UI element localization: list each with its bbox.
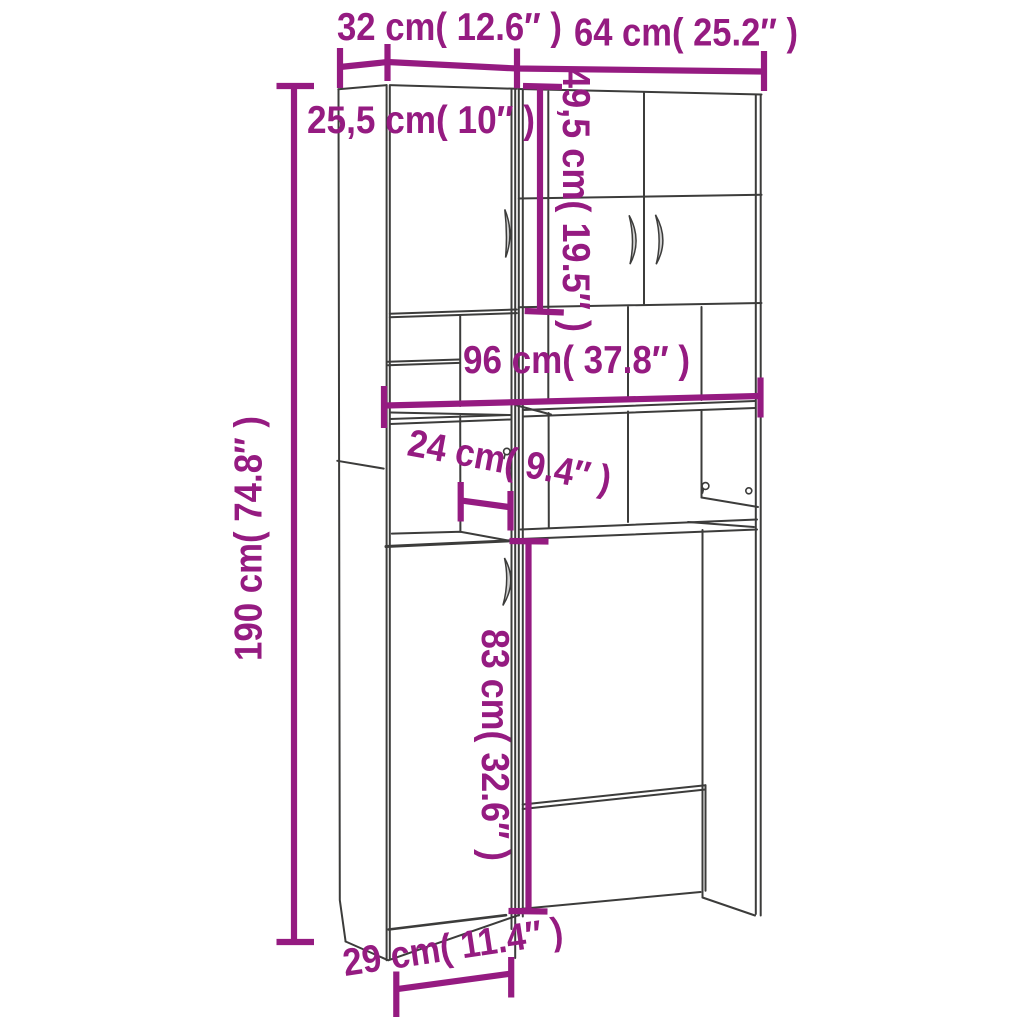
svg-text:24 cm( 9.4″ ): 24 cm( 9.4″ ) [404, 422, 614, 502]
svg-text:83 cm( 32.6″ ): 83 cm( 32.6″ ) [473, 629, 516, 861]
svg-text:96 cm( 37.8″ ): 96 cm( 37.8″ ) [463, 339, 690, 382]
svg-text:64 cm( 25.2″ ): 64 cm( 25.2″ ) [574, 12, 798, 55]
svg-text:32 cm( 12.6″ ): 32 cm( 12.6″ ) [337, 6, 562, 49]
svg-text:190 cm( 74.8″ ): 190 cm( 74.8″ ) [228, 416, 271, 661]
svg-text:49,5 cm( 19.5″ ): 49,5 cm( 19.5″ ) [554, 68, 597, 332]
svg-text:25,5 cm( 10″ ): 25,5 cm( 10″ ) [307, 99, 535, 142]
